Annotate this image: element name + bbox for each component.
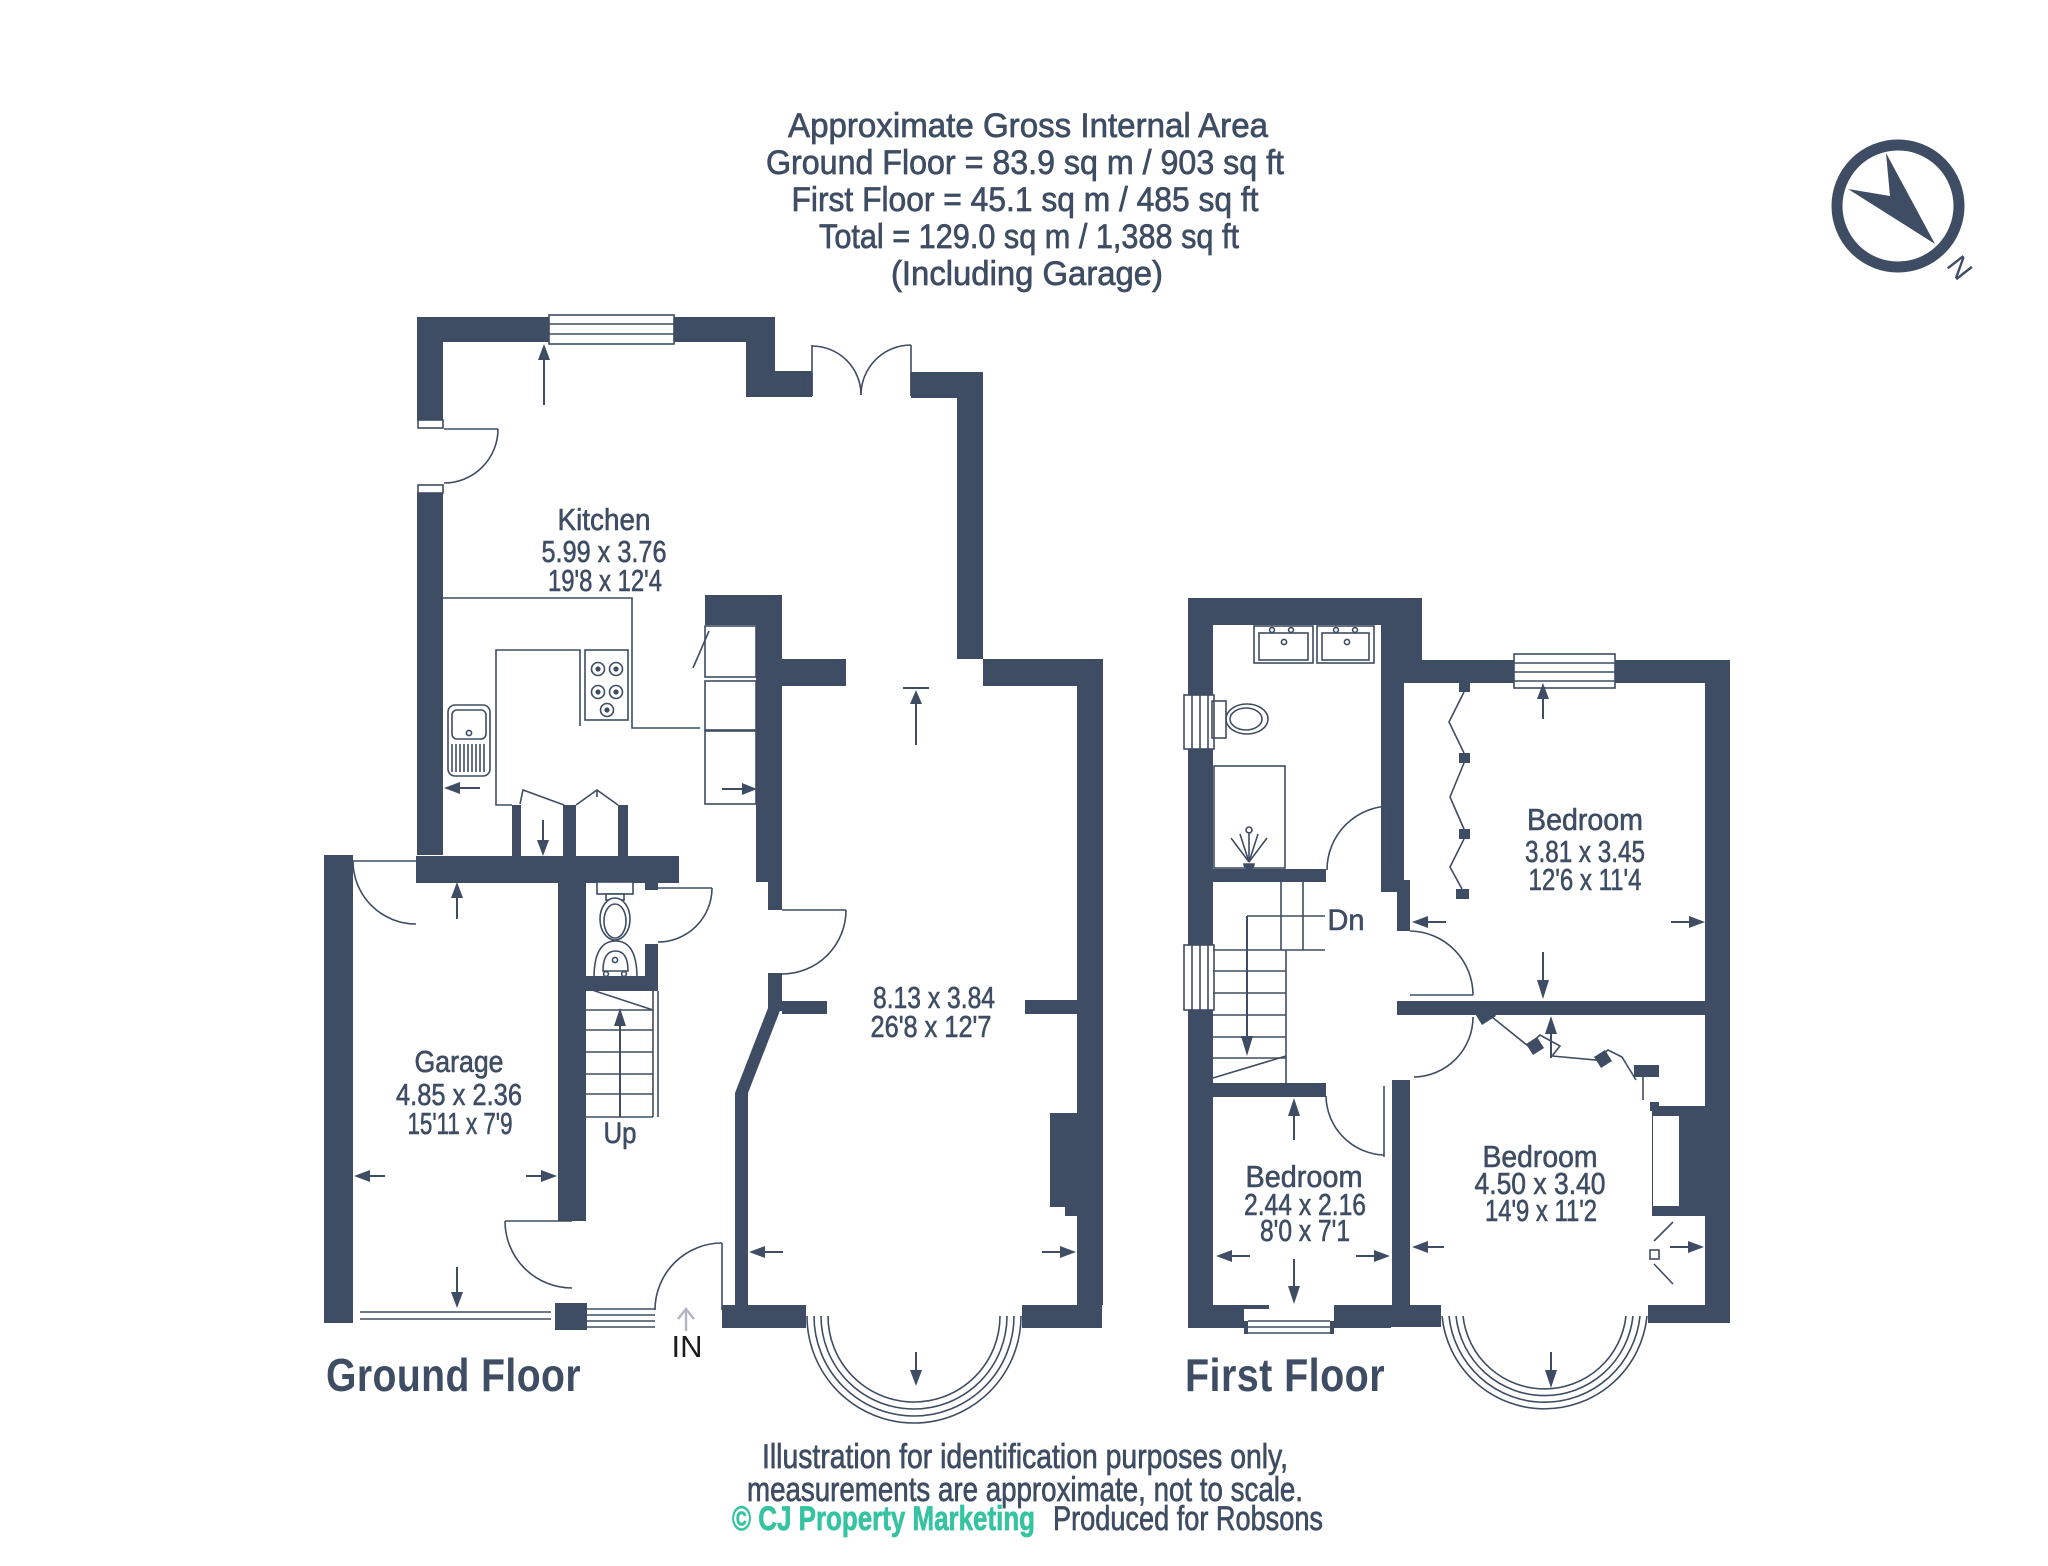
svg-text:First Floor = 45.1 sq m / 485: First Floor = 45.1 sq m / 485 sq ft	[792, 181, 1260, 219]
svg-text:8'0 x 7'1: 8'0 x 7'1	[1260, 1213, 1350, 1248]
svg-text:Up: Up	[604, 1117, 637, 1150]
svg-text:26'8 x 12'7: 26'8 x 12'7	[871, 1009, 992, 1044]
svg-text:IN: IN	[672, 1329, 703, 1364]
svg-text:15'11 x 7'9: 15'11 x 7'9	[408, 1106, 513, 1141]
svg-text:Garage: Garage	[415, 1044, 504, 1079]
svg-text:Approximate Gross Internal Are: Approximate Gross Internal Area	[788, 107, 1268, 145]
svg-text:Total = 129.0 sq m / 1,388 sq: Total = 129.0 sq m / 1,388 sq ft	[819, 218, 1239, 256]
svg-text:12'6 x 11'4: 12'6 x 11'4	[1529, 862, 1642, 897]
svg-text:Ground Floor = 83.9 sq m / 903: Ground Floor = 83.9 sq m / 903 sq ft	[766, 144, 1285, 182]
svg-text:19'8 x 12'4: 19'8 x 12'4	[548, 563, 662, 598]
svg-text:(Including Garage): (Including Garage)	[891, 255, 1163, 293]
svg-text:Kitchen: Kitchen	[558, 502, 651, 537]
svg-text:14'9 x 11'2: 14'9 x 11'2	[1485, 1193, 1597, 1228]
svg-text:© CJ Property Marketing: © CJ Property Marketing	[732, 1500, 1035, 1538]
svg-text:Dn: Dn	[1328, 904, 1365, 937]
svg-text:First Floor: First Floor	[1185, 1349, 1385, 1401]
svg-text:Ground Floor: Ground Floor	[326, 1349, 581, 1401]
svg-text:Bedroom: Bedroom	[1527, 802, 1643, 837]
svg-text:Produced for Robsons: Produced for Robsons	[1053, 1500, 1323, 1538]
